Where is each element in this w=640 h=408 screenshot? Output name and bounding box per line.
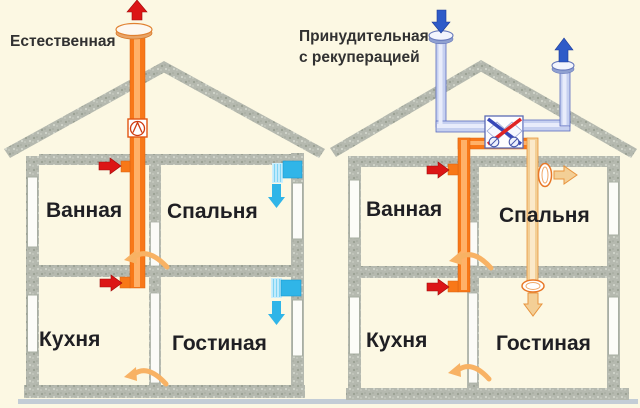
- foundation-slab: [346, 388, 629, 400]
- window: [350, 180, 360, 238]
- left-system-title: Естественная: [10, 33, 116, 50]
- cyan-down-arrow-icon: [268, 301, 285, 325]
- duct-branch: [448, 281, 458, 292]
- ceiling-diffuser-icon: [522, 280, 544, 316]
- intake-duct-highlight: [437, 124, 485, 128]
- cyan-down-arrow-icon: [268, 184, 285, 208]
- exhaust-duct-highlight: [134, 37, 140, 287]
- red-right-arrow-icon: [427, 279, 449, 295]
- blue-up-arrow-icon: [555, 38, 573, 62]
- chimney-cap: [116, 24, 152, 40]
- window: [350, 297, 360, 354]
- room-label-bathroom: Ванная: [366, 198, 442, 221]
- diagram-canvas: Ванная Спальня Кухня Гостиная: [0, 0, 640, 408]
- middle-floor: [361, 266, 607, 278]
- ventilation-diagram: Ванная Спальня Кухня Гостиная: [0, 0, 640, 408]
- intake-duct-highlight: [439, 42, 443, 126]
- room-label-bedroom: Спальня: [167, 200, 258, 223]
- room-label-kitchen: Кухня: [39, 328, 100, 351]
- attic-floor: [39, 154, 291, 165]
- window: [28, 295, 38, 352]
- door-gap: [151, 293, 160, 383]
- red-up-arrow-icon: [127, 0, 147, 20]
- room-label-bedroom: Спальня: [499, 204, 590, 227]
- right-house: Ванная Спальня Кухня Гостиная: [330, 10, 637, 400]
- right-system-title-line1: Принудительная: [299, 28, 429, 45]
- window: [293, 183, 303, 239]
- heat-exchanger-icon: [485, 116, 523, 148]
- blue-down-arrow-icon: [432, 10, 450, 33]
- red-right-arrow-icon: [100, 275, 122, 291]
- cream-down-arrow-icon: [524, 293, 542, 316]
- room-label-living: Гостиная: [172, 332, 267, 355]
- room-label-bathroom: Ванная: [46, 199, 122, 222]
- window: [28, 177, 38, 247]
- window: [609, 182, 619, 235]
- left-house: Ванная Спальня Кухня Гостиная: [4, 0, 325, 398]
- foundation-slab: [24, 385, 305, 398]
- cream-right-arrow-icon: [554, 166, 577, 184]
- extract-duct-highlight: [461, 140, 467, 290]
- left-house-roof-right-slab: [161, 61, 325, 158]
- attic-floor: [361, 156, 607, 167]
- exhaust-riser-highlight: [563, 71, 567, 125]
- window: [293, 300, 303, 356]
- fan-icon: [128, 119, 147, 137]
- exhaust-cap: [552, 61, 574, 74]
- room-label-living: Гостиная: [496, 332, 591, 355]
- duct-branch: [121, 161, 130, 172]
- window: [609, 297, 619, 355]
- room-label-kitchen: Кухня: [366, 329, 427, 352]
- duct-branch: [448, 164, 458, 175]
- right-system-title-line2: с рекуперацией: [299, 49, 420, 66]
